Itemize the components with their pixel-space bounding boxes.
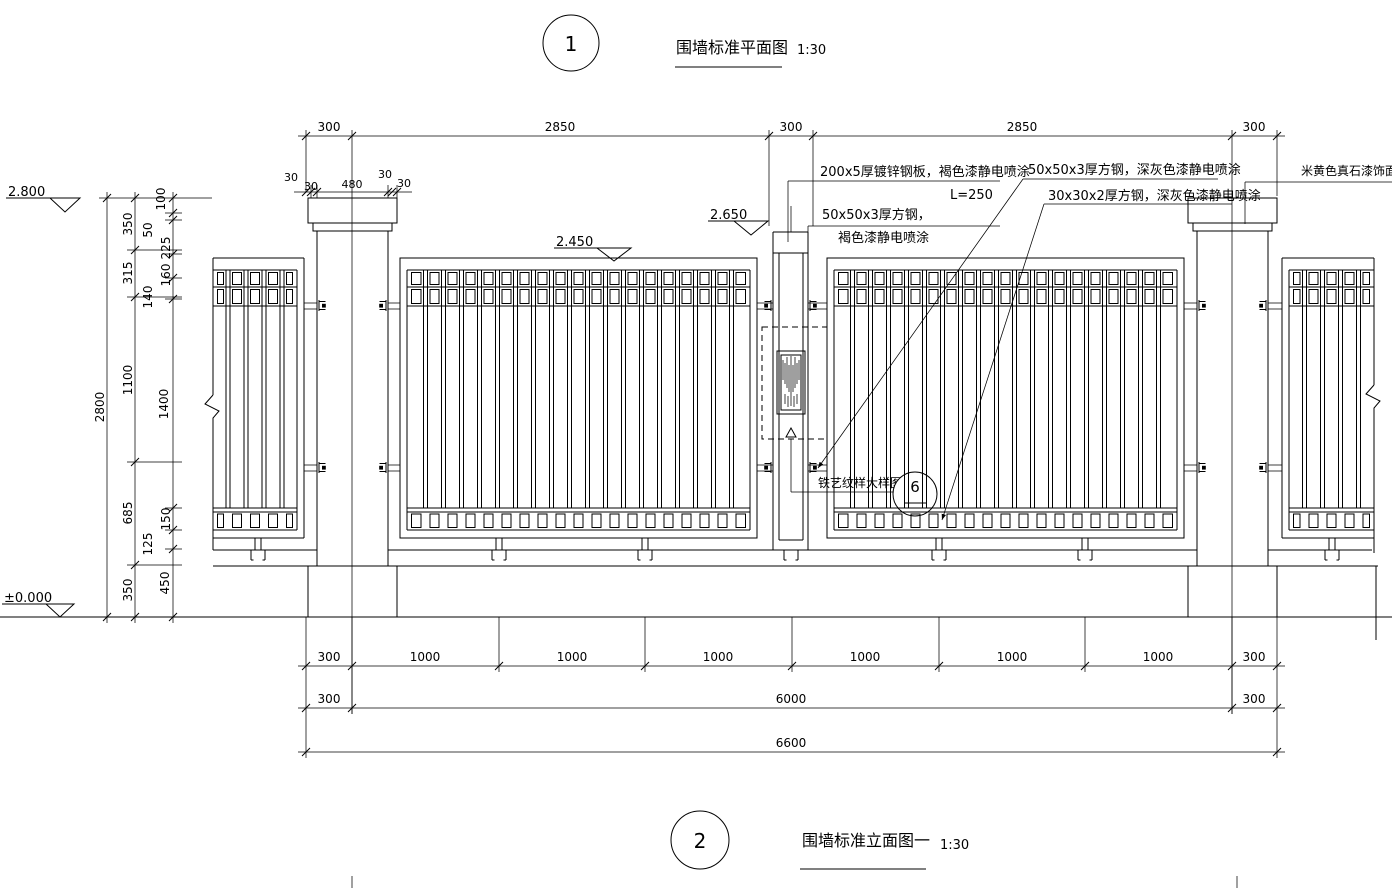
dim-label: 140 [141,286,155,309]
dim-label: 350 [121,579,135,602]
dim-label: 30 [378,168,392,181]
panel-bars [218,270,293,528]
post-anchor-foot [782,550,800,560]
dim-label: 1100 [121,365,135,396]
title-elevation-scale: 1:30 [940,838,969,853]
dim-label: 450 [158,572,172,595]
dim-label: 300 [318,692,341,706]
iron-ornament-icon [783,356,799,407]
dim-label: 30 [284,171,298,184]
center-post [762,206,827,560]
iron-pattern-detail-callout: 铁艺纹样大样图 6 [791,439,937,516]
pillar-cap-dimension-chain: 30 30 480 30 30 [284,168,412,198]
title-elevation: 2 围墙标准立面图一 1:30 [671,811,969,869]
dim-label: 1000 [410,650,441,664]
title-plan: 1 围墙标准平面图 1:30 [543,15,826,71]
dim-label: 1000 [703,650,734,664]
annotation-square-steel-gray-50: 50x50x3厚方钢，深灰色漆静电喷涂 [1028,162,1241,178]
dim-label: 1000 [850,650,881,664]
dim-label: 125 [141,533,155,556]
dim-label: 30 [397,177,411,190]
dim-label: 685 [121,502,135,525]
panel-bars [1294,270,1370,528]
dim-label: 225 [159,237,173,260]
annotation-plate-length: L=250 [950,188,993,203]
dim-label: 300 [318,120,341,134]
elevation-triangle-icon [597,248,631,261]
break-symbol-icon [205,395,219,430]
title-elevation-label: 围墙标准立面图一 [802,831,930,850]
dim-label: 1000 [557,650,588,664]
dim-label: 150 [159,508,173,531]
dim-label: 30 [304,180,318,193]
elevation-marker-ground: ±0.000 [2,591,74,617]
break-symbol-icon [1366,385,1380,418]
title-plan-number: 1 [565,32,578,56]
dim-label: 300 [318,650,341,664]
elevation-triangle-icon [46,604,74,617]
fence-panel-frames [205,258,1380,553]
dim-label: 300 [1243,120,1266,134]
dim-label: 1400 [157,389,171,420]
dim-label: 300 [1243,692,1266,706]
elevation-marker-post-top: 2.650 [708,208,768,235]
elevation-triangle-icon [50,198,80,212]
up-arrow-icon [786,428,796,437]
pillar-cap [308,198,397,223]
detail-callout-label: 铁艺纹样大样图 [818,475,902,490]
annotation-square-steel-brown-1: 50x50x3厚方钢， [822,207,931,223]
right-pillar [1188,130,1277,714]
panel-frame-outer [400,258,757,538]
left-pillar [308,130,397,714]
elevation-marker-wall-top: 2.800 [6,185,80,212]
elevation-marker-panel-top: 2.450 [554,235,631,261]
annotation-square-steel-brown-2: 褐色漆静电喷涂 [838,230,929,246]
leader-line [942,204,1044,520]
bottom-dimension-chains: 300 1000 1000 1000 1000 1000 1000 300 30… [298,617,1285,758]
dim-label: 1000 [1143,650,1174,664]
ground-and-base [0,550,1392,640]
dim-label: 6600 [776,736,807,750]
title-plan-scale: 1:30 [797,43,826,58]
fence-elevation-drawing: 1 围墙标准平面图 1:30 300 2850 300 2850 300 30 … [0,0,1392,888]
dim-label: 2850 [545,120,576,134]
dim-label: 160 [159,264,173,287]
material-annotations: 200x5厚镀锌钢板，褐色漆静电喷涂 L=250 50x50x3厚方钢， 褐色漆… [788,162,1392,520]
panel-support-legs [249,538,1341,560]
detail-bubble-number: 6 [910,478,920,496]
dim-label: 300 [780,120,803,134]
elevation-triangle-icon [734,221,768,235]
dim-label: 300 [1243,650,1266,664]
dim-label: 315 [121,262,135,285]
pillar-footing [1188,566,1277,617]
dim-label: 50 [141,222,155,237]
pillar-footing [308,566,397,617]
annotation-steel-plate: 200x5厚镀锌钢板，褐色漆静电喷涂 [820,164,1030,180]
panel-frame-outer [827,258,1184,538]
dim-label: 1000 [997,650,1028,664]
cad-drawing-sheet: 1 围墙标准平面图 1:30 300 2850 300 2850 300 30 … [0,0,1392,888]
dim-label: 2850 [1007,120,1038,134]
dim-label: 2800 [93,392,107,423]
detail-scope-dashed-box [762,327,827,439]
title-elevation-number: 2 [694,829,707,853]
dim-label: 100 [154,188,168,211]
pillar-cap-step [313,223,392,231]
title-plan-label: 围墙标准平面图 [676,38,788,57]
dim-label: 350 [121,213,135,236]
dim-label: 6000 [776,692,807,706]
pillar-cap-step [1193,223,1272,231]
iron-pattern-box [777,351,805,414]
panel-bars [412,270,746,528]
annotation-stone-finish: 米黄色真石漆饰面 [1301,164,1392,178]
annotation-square-steel-gray-30: 30x30x2厚方钢，深灰色漆静电喷涂 [1048,188,1261,204]
left-dimension-chains: 2800 350 315 1100 685 350 100 50 225 160… [93,188,212,623]
